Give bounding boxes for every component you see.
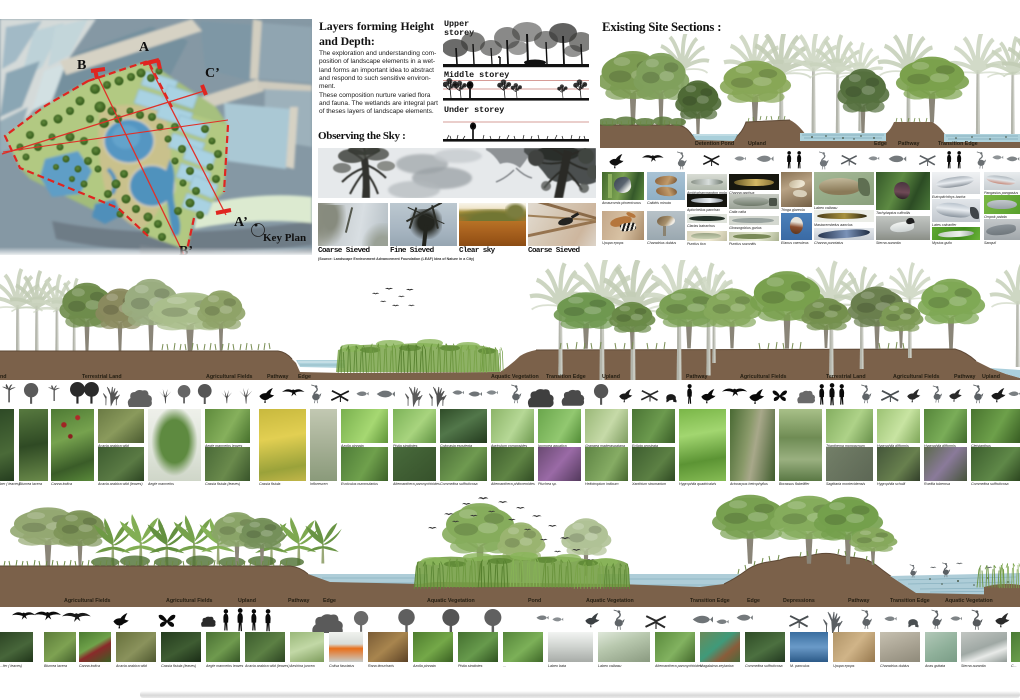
svg-text:Key Plan: Key Plan <box>263 232 306 244</box>
svg-text:nd: nd <box>0 374 6 380</box>
svg-text:Pathway: Pathway <box>898 141 920 147</box>
svg-text:C’: C’ <box>205 66 220 81</box>
svg-text:Edge: Edge <box>298 374 311 380</box>
svg-text:B: B <box>77 58 86 73</box>
svg-text:Detention Pond: Detention Pond <box>695 141 734 147</box>
svg-text:Middle storey: Middle storey <box>444 70 509 80</box>
svg-text:Terrestrial Land: Terrestrial Land <box>826 374 866 380</box>
svg-text:Agricultural Fields: Agricultural Fields <box>893 374 940 380</box>
svg-text:Aquatic Vegetation: Aquatic Vegetation <box>427 598 475 604</box>
svg-text:Pathway: Pathway <box>288 598 310 604</box>
svg-text:Pathway: Pathway <box>267 374 289 380</box>
svg-text:Upland: Upland <box>602 374 620 380</box>
svg-text:Transition Edge: Transition Edge <box>890 598 930 604</box>
svg-text:Transition Edge: Transition Edge <box>690 598 730 604</box>
svg-text:Pond: Pond <box>528 598 541 604</box>
svg-text:Terrestrial Land: Terrestrial Land <box>82 374 122 380</box>
svg-text:Depressions: Depressions <box>783 598 815 604</box>
svg-text:Pathway: Pathway <box>848 598 870 604</box>
svg-text:Agricultural Fields: Agricultural Fields <box>740 374 787 380</box>
svg-text:Agricultural Fields: Agricultural Fields <box>206 374 253 380</box>
svg-text:A’: A’ <box>234 215 248 230</box>
svg-text:Upland: Upland <box>982 374 1000 380</box>
svg-text:Under storey: Under storey <box>444 105 504 115</box>
svg-text:Transition Edge: Transition Edge <box>546 374 586 380</box>
svg-text:Aquatic Vegetation: Aquatic Vegetation <box>491 374 539 380</box>
svg-text:Agricultural Fields: Agricultural Fields <box>64 598 111 604</box>
svg-text:Edge: Edge <box>874 141 887 147</box>
svg-text:Aquatic Vegetation: Aquatic Vegetation <box>945 598 993 604</box>
svg-text:Upland: Upland <box>238 598 256 604</box>
svg-text:Agricultural Fields: Agricultural Fields <box>166 598 213 604</box>
svg-text:Pathway: Pathway <box>686 374 708 380</box>
svg-text:Aquatic Vegetation: Aquatic Vegetation <box>586 598 634 604</box>
svg-text:Transition Edge: Transition Edge <box>938 141 978 147</box>
svg-text:Upland: Upland <box>748 141 766 147</box>
svg-text:Pathway: Pathway <box>954 374 976 380</box>
svg-text:Edge: Edge <box>747 598 760 604</box>
svg-text:Edge: Edge <box>323 598 336 604</box>
svg-text:A: A <box>139 40 150 55</box>
